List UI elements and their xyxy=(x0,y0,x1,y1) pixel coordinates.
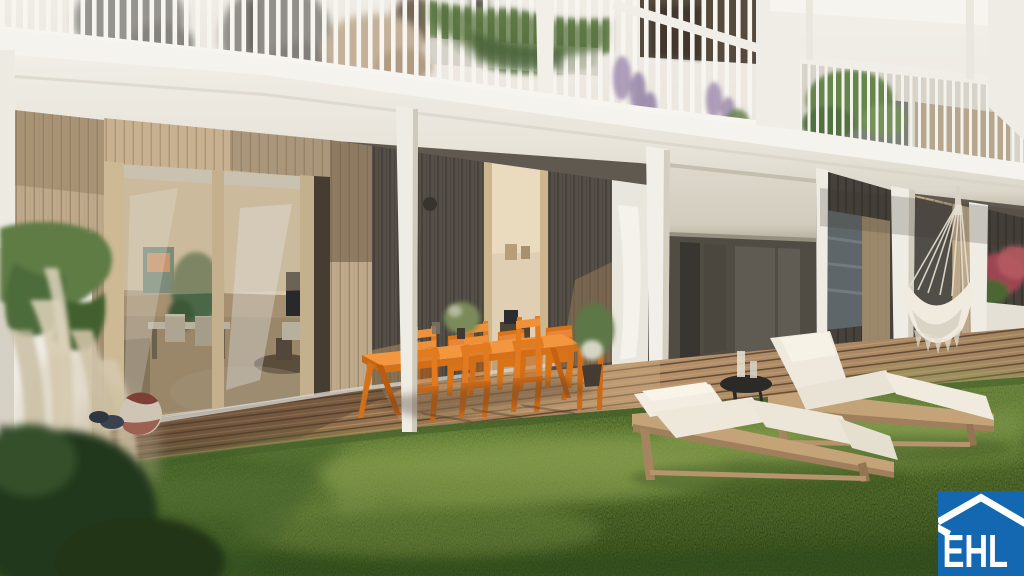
svg-text:EHL: EHL xyxy=(943,525,1009,576)
